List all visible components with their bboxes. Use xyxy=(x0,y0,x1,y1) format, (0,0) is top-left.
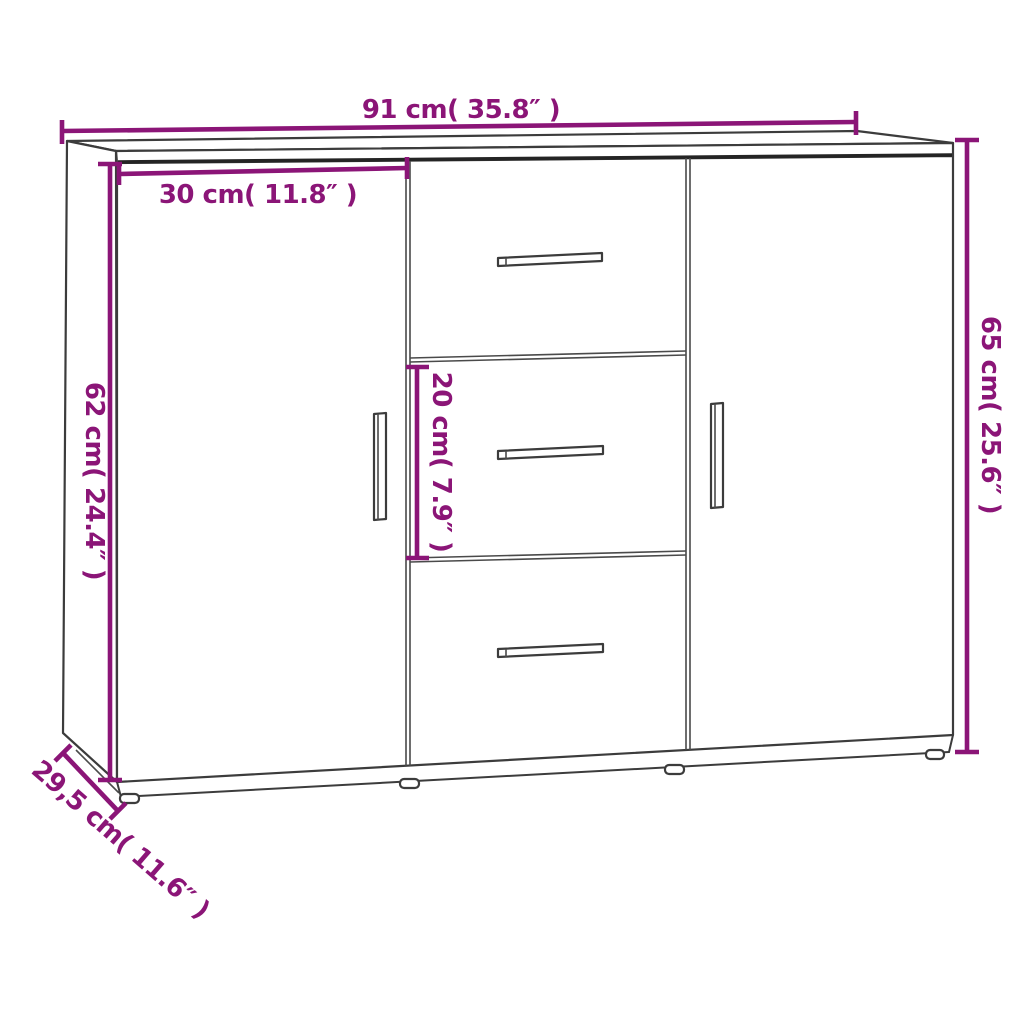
left-door-handle xyxy=(374,413,386,520)
foot-2 xyxy=(400,779,419,788)
front-face xyxy=(117,156,953,782)
foot-3 xyxy=(665,765,684,774)
right-door-handle xyxy=(711,403,723,508)
foot-4 xyxy=(926,750,944,759)
label-height-total: 65 cm( 25.6″ ) xyxy=(975,316,1005,514)
label-door-height: 62 cm( 24.4″ ) xyxy=(79,382,109,580)
sideboard-drawing xyxy=(63,131,953,803)
label-width-total: 91 cm( 35.8″ ) xyxy=(362,95,560,125)
foot-1 xyxy=(120,794,139,803)
label-door-width: 30 cm( 11.8″ ) xyxy=(159,180,357,210)
dimension-diagram: 91 cm( 35.8″ ) 30 cm( 11.8″ ) 62 cm( 24.… xyxy=(0,0,1024,1024)
diagram-canvas: 91 cm( 35.8″ ) 30 cm( 11.8″ ) 62 cm( 24.… xyxy=(0,0,1024,1024)
label-drawer-height: 20 cm( 7.9″ ) xyxy=(426,372,456,553)
